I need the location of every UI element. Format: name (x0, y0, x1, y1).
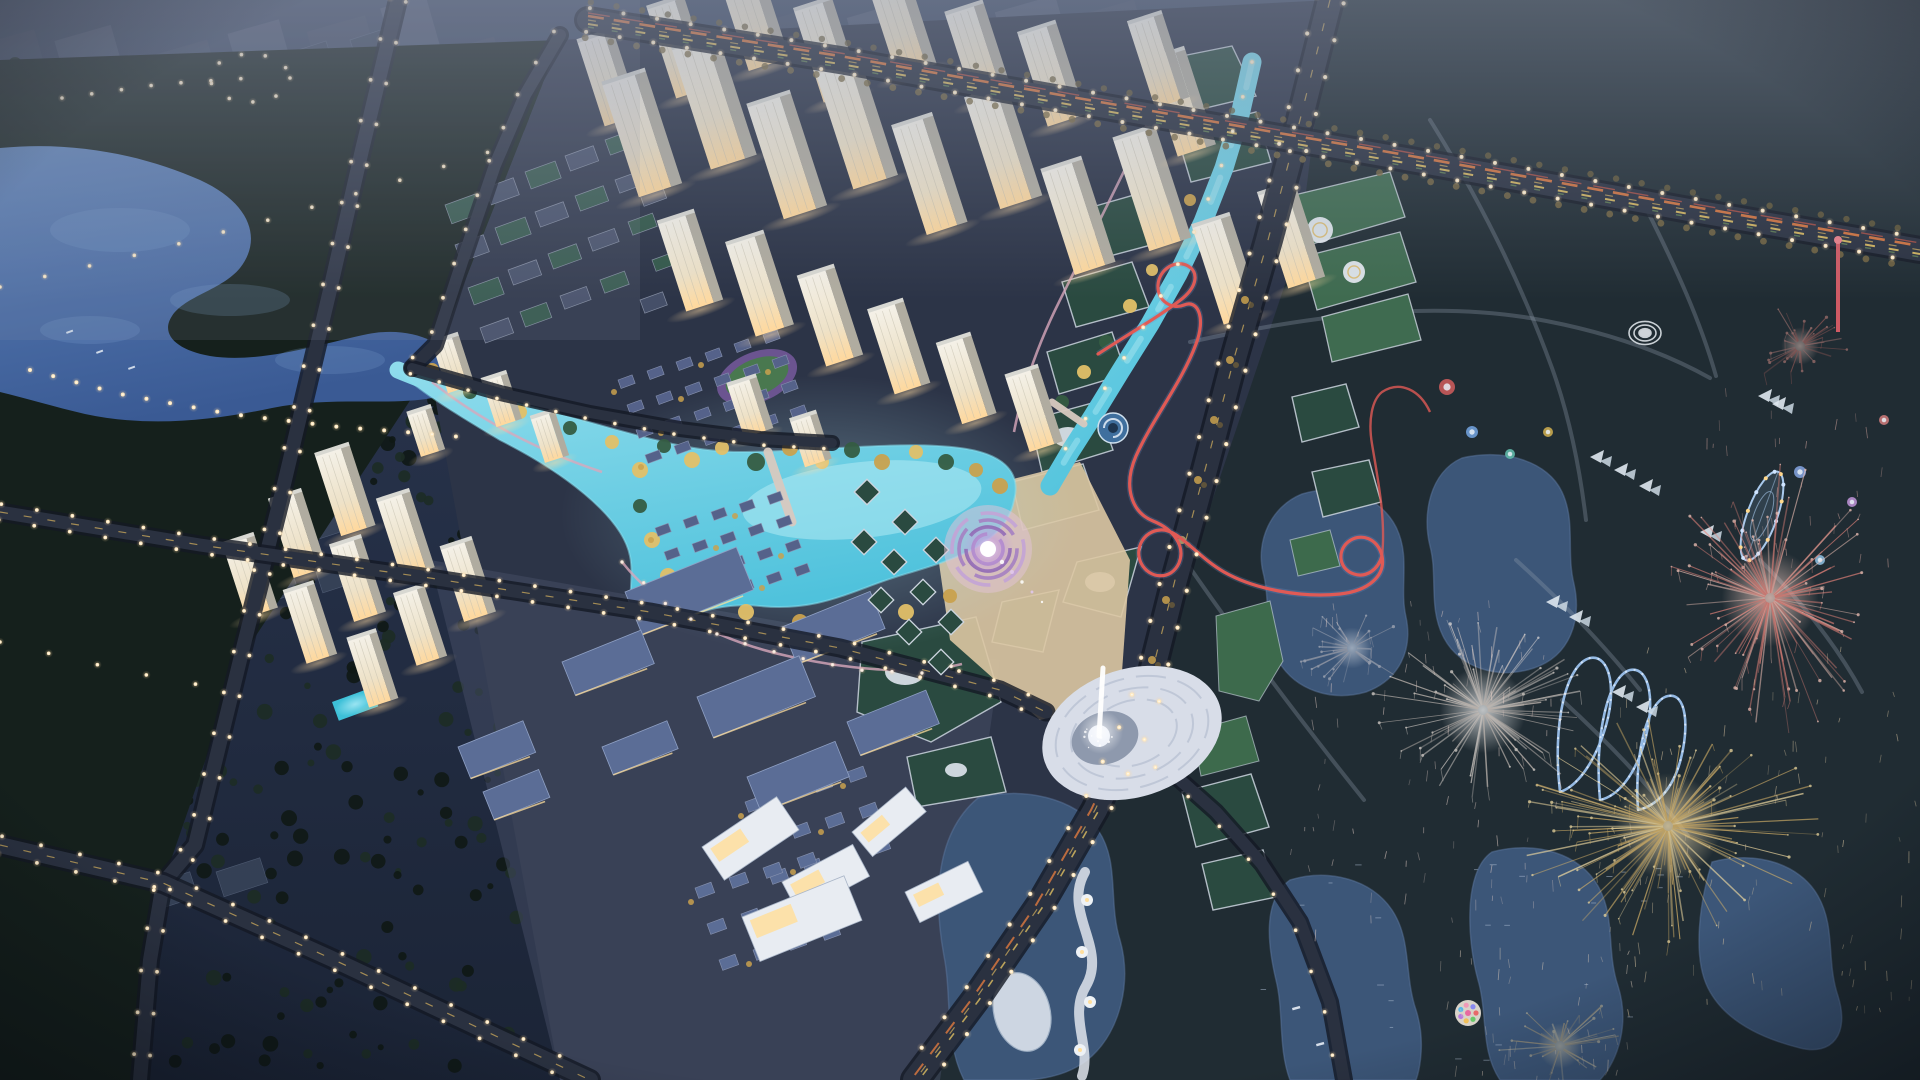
vignette (0, 0, 1920, 1080)
aerial-city-rendering (0, 0, 1920, 1080)
screenshot-canvas (0, 0, 1920, 1080)
atmosphere-layer (0, 0, 1920, 1080)
